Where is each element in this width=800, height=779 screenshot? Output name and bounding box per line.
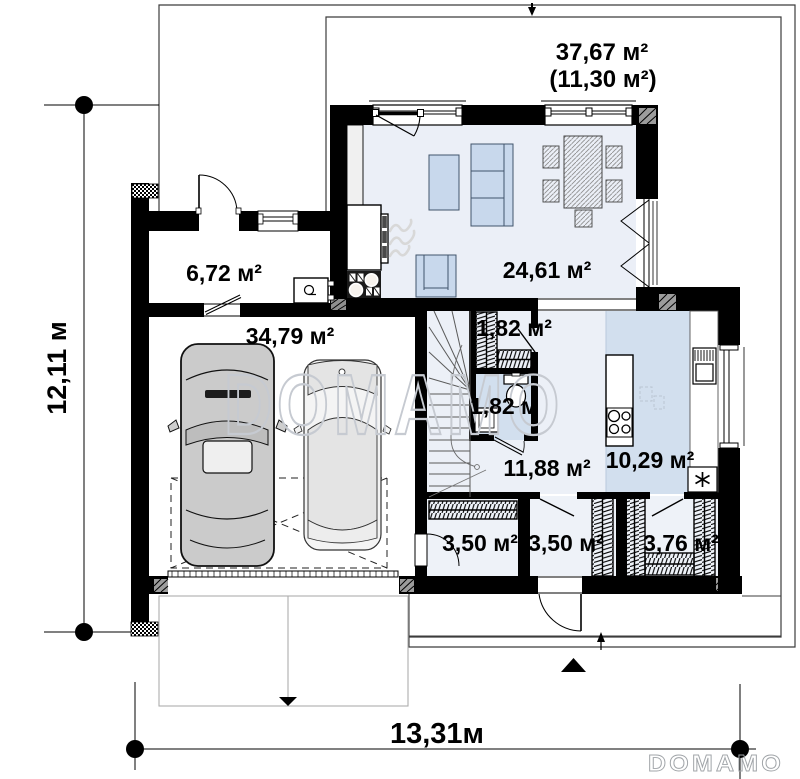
svg-text:34,79 м²: 34,79 м² [246,323,335,349]
svg-text:3,50 м²: 3,50 м² [442,530,518,556]
svg-text:3,76 м²: 3,76 м² [643,530,719,556]
svg-text:24,61 м²: 24,61 м² [503,257,592,283]
svg-text:1,82 м²: 1,82 м² [476,315,552,341]
svg-text:1,82 м: 1,82 м [470,393,538,419]
svg-text:10,29 м²: 10,29 м² [606,447,695,473]
svg-text:13,31м: 13,31м [390,718,484,750]
svg-text:3,50 м²: 3,50 м² [528,530,604,556]
svg-text:6,72 м²: 6,72 м² [186,260,262,286]
svg-text:37,67 м²: 37,67 м² [556,39,648,66]
svg-text:(11,30 м²): (11,30 м²) [549,66,656,93]
svg-text:11,88 м²: 11,88 м² [503,455,591,481]
svg-text:12,11 м: 12,11 м [42,321,72,415]
svg-text:DOMAMO: DOMAMO [648,750,784,776]
